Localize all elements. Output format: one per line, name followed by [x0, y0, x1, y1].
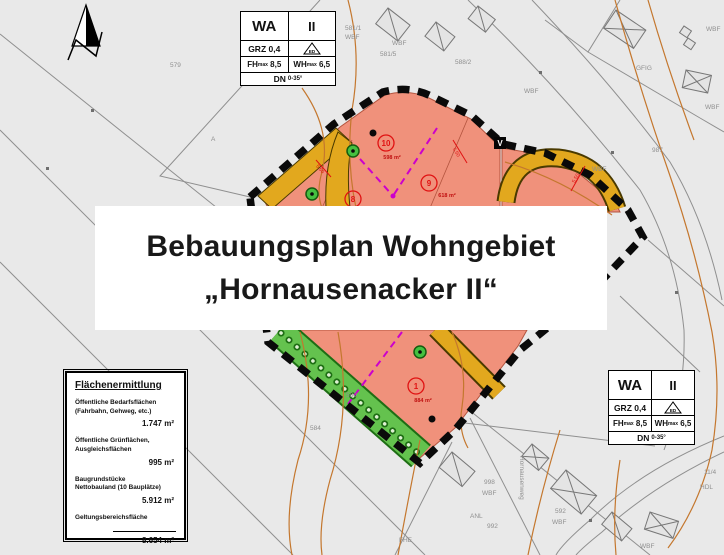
- roof-pitch-value: DN0-35°: [241, 73, 335, 85]
- map-label: WBF: [552, 519, 566, 526]
- divider-node: [391, 194, 396, 199]
- map-label: 584: [310, 425, 321, 432]
- roof-pitch-value: DN0-35°: [609, 432, 694, 444]
- map-label: GFIG: [636, 65, 652, 72]
- storeys-value: II: [651, 371, 694, 399]
- map-label: A: [211, 136, 216, 143]
- zoning-info-box-right: WA II GRZ 0,4 ED FHmax 8,5 WHmax 6,5 DN0…: [608, 370, 695, 445]
- svg-text:884 m²: 884 m²: [414, 397, 432, 404]
- svg-text:V: V: [497, 139, 503, 148]
- street-name-label: Hornausenweg: [518, 456, 525, 500]
- map-label: 998: [484, 479, 495, 486]
- area-row-label: Geltungsbereichsfläche: [75, 514, 176, 523]
- grz-value: GRZ 0,4: [609, 400, 651, 415]
- map-label: WBF: [392, 40, 406, 47]
- grz-value: GRZ 0,4: [241, 41, 288, 56]
- area-calculation-table: Flächenermittlung Öffentliche Bedarfsflä…: [65, 371, 186, 540]
- svg-text:10: 10: [382, 139, 391, 148]
- zone-code: WA: [609, 371, 651, 399]
- svg-text:598 m²: 598 m²: [383, 154, 401, 161]
- map-label: 581/1: [345, 25, 362, 32]
- area-total-value: 8.654 m²: [75, 536, 174, 545]
- map-label: 580: [346, 392, 357, 399]
- boundary-point-marker: [370, 130, 377, 137]
- area-row-label: Öffentliche Grünflächen, Ausgleichsfläch…: [75, 437, 176, 454]
- area-row-label: Öffentliche Bedarfsflächen (Fahrbahn, Ge…: [75, 399, 176, 416]
- zone-code: WA: [241, 12, 288, 40]
- map-label: 581/5: [380, 51, 397, 58]
- map-label: HDL: [700, 484, 713, 491]
- map-label: 579: [170, 62, 181, 69]
- plan-sheet: V 5,50 5,50 5,50 10 598 m² 9 618 m² 8 1 …: [0, 0, 724, 555]
- wh-max-value: WHmax 6,5: [651, 416, 694, 431]
- map-label: WBF: [705, 104, 719, 111]
- v-marker: V: [494, 137, 506, 149]
- fh-max-value: FHmax 8,5: [241, 57, 288, 72]
- map-label: ANL: [470, 513, 483, 520]
- storeys-value: II: [288, 12, 336, 40]
- area-row-value: 1.747 m²: [75, 419, 174, 428]
- plan-title-line1: Bebauungsplan Wohngebiet: [146, 230, 555, 264]
- map-label: WBF: [345, 34, 359, 41]
- svg-text:ED: ED: [670, 408, 677, 413]
- svg-text:9: 9: [427, 179, 432, 188]
- zoning-info-box-top: WA II GRZ 0,4 ED FHmax 8,5 WHmax 6,5 DN0…: [240, 11, 336, 86]
- svg-text:1: 1: [414, 382, 419, 391]
- map-label: 592: [555, 508, 566, 515]
- title-banner: Bebauungsplan Wohngebiet „Hornausenacker…: [95, 206, 607, 330]
- map-label: WBF: [640, 543, 654, 550]
- map-label: FHE: [399, 537, 413, 544]
- north-arrow-icon: [58, 2, 114, 64]
- svg-text:618 m²: 618 m²: [438, 192, 456, 199]
- wh-max-value: WHmax 6,5: [288, 57, 336, 72]
- area-row-value: 995 m²: [75, 458, 174, 467]
- fh-max-value: FHmax 8,5: [609, 416, 651, 431]
- map-label: 588/2: [455, 59, 472, 66]
- boundary-point-marker: [429, 416, 436, 423]
- map-label: 987: [652, 147, 663, 154]
- area-row-value: 5.912 m²: [75, 496, 174, 505]
- roof-ed-icon: ED: [651, 400, 694, 415]
- map-label: WBF: [482, 490, 496, 497]
- map-label: WBF: [706, 26, 720, 33]
- plan-title-line2: „Hornausenacker II“: [204, 273, 498, 307]
- area-row-label: Baugrundstücke Nettobauland (10 Bauplätz…: [75, 476, 176, 493]
- map-label: 992: [487, 523, 498, 530]
- map-label: WBF: [592, 166, 606, 173]
- sum-divider: [113, 531, 176, 532]
- svg-text:ED: ED: [309, 49, 316, 54]
- area-table-title: Flächenermittlung: [75, 380, 176, 391]
- roof-ed-icon: ED: [288, 41, 336, 56]
- map-label: 11/4: [704, 469, 717, 476]
- map-label: WBF: [524, 88, 538, 95]
- svg-text:8: 8: [351, 195, 356, 204]
